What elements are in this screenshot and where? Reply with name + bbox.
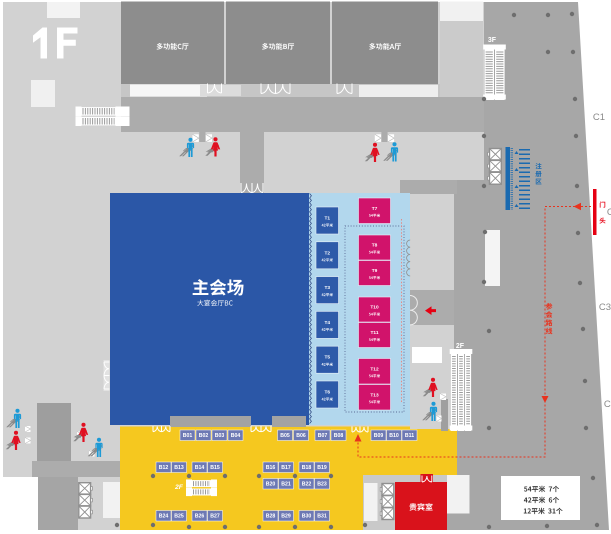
svg-text:B28: B28 — [266, 514, 276, 520]
svg-text:B22: B22 — [302, 482, 312, 488]
svg-text:3F: 3F — [488, 37, 497, 44]
svg-text:C4: C4 — [604, 399, 611, 410]
svg-text:B13: B13 — [174, 465, 184, 471]
svg-text:C1: C1 — [593, 112, 605, 123]
svg-text:2F: 2F — [456, 343, 465, 350]
svg-text:B27: B27 — [210, 514, 220, 520]
svg-text:B17: B17 — [281, 465, 291, 471]
svg-text:B18: B18 — [302, 465, 312, 471]
svg-text:B29: B29 — [281, 514, 291, 520]
svg-text:2F: 2F — [174, 484, 184, 491]
svg-text:B31: B31 — [317, 514, 327, 520]
svg-text:T7: T7 — [372, 206, 378, 212]
svg-text:T13: T13 — [370, 392, 379, 398]
svg-text:T6: T6 — [324, 390, 330, 396]
svg-text:T8: T8 — [372, 243, 378, 249]
svg-text:B23: B23 — [317, 482, 327, 488]
svg-text:B05: B05 — [280, 433, 290, 439]
svg-text:B30: B30 — [302, 514, 312, 520]
svg-text:B26: B26 — [195, 514, 205, 520]
svg-text:T3: T3 — [324, 285, 330, 291]
svg-text:T4: T4 — [324, 320, 330, 326]
svg-text:B11: B11 — [405, 433, 414, 439]
svg-text:B10: B10 — [389, 433, 399, 439]
svg-text:T5: T5 — [324, 355, 330, 361]
svg-text:B21: B21 — [281, 482, 291, 488]
svg-text:T9: T9 — [372, 268, 378, 274]
svg-text:B12: B12 — [159, 465, 169, 471]
svg-text:B25: B25 — [174, 514, 184, 520]
svg-text:T2: T2 — [324, 250, 330, 256]
svg-text:B01: B01 — [183, 433, 193, 439]
svg-text:B03: B03 — [215, 433, 225, 439]
svg-text:T1: T1 — [324, 216, 330, 222]
svg-text:C2: C2 — [607, 207, 611, 218]
svg-text:B07: B07 — [318, 433, 328, 439]
svg-text:B15: B15 — [210, 465, 220, 471]
svg-text:B19: B19 — [317, 465, 327, 471]
svg-text:B24: B24 — [159, 514, 169, 520]
svg-text:B16: B16 — [266, 465, 276, 471]
svg-text:B20: B20 — [266, 482, 276, 488]
svg-text:T10: T10 — [370, 305, 379, 311]
svg-text:B06: B06 — [296, 433, 306, 439]
svg-text:B08: B08 — [334, 433, 344, 439]
svg-text:B09: B09 — [374, 433, 384, 439]
svg-text:B14: B14 — [195, 465, 205, 471]
svg-text:C3: C3 — [599, 302, 611, 313]
svg-text:B02: B02 — [199, 433, 209, 439]
svg-text:B04: B04 — [231, 433, 241, 439]
svg-text:T11: T11 — [370, 330, 378, 336]
svg-text:T12: T12 — [370, 366, 379, 372]
